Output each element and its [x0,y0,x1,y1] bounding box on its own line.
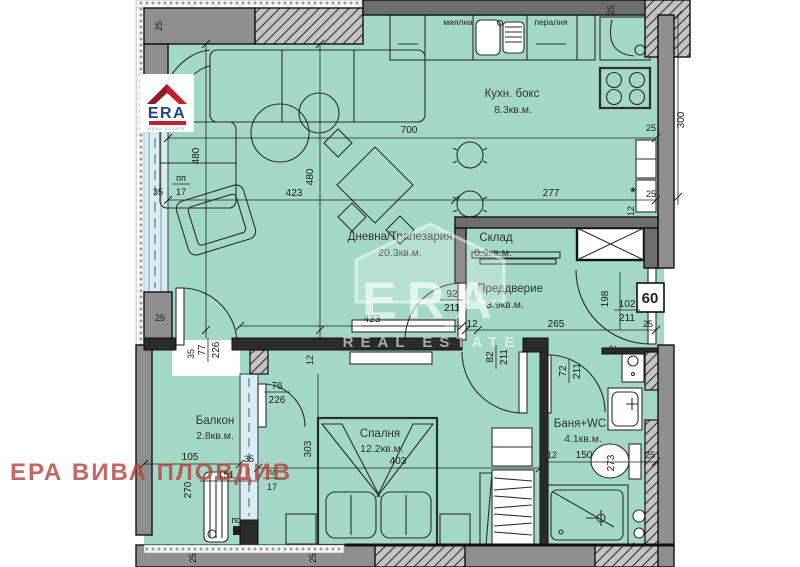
bath-name: Баня+WC [554,418,606,430]
svg-text:226: 226 [269,395,286,406]
era-watermark-subtext: REAL ESTATE [343,334,522,351]
dim-hall-right-12: 12 [608,345,618,355]
svg-text:102: 102 [619,299,636,310]
era-logo: ERA REAL ESTATE [140,74,194,132]
asterisk-symbol: * [630,185,636,202]
kitchen-name: Кухн. бокс [485,88,540,100]
insulation-top [136,0,363,8]
kitchen-cabinets [636,140,656,212]
dim-tv-12: 12 [305,355,315,365]
dim-left-25: 25 [155,313,165,323]
svg-text:211: 211 [572,363,583,379]
dim-wall-12-r: 12 [626,206,636,216]
dim-bottom-25b: 25 [308,553,318,563]
washer-label: пералня [534,17,567,27]
era-logo-subtext: REAL ESTATE [148,126,185,131]
bedroom-width: 403 [390,456,407,467]
right-wall-upper [658,15,674,268]
agency-stamp-text: ЕРА ВИВА ПЛОВДИВ [10,459,292,486]
balcony-name: Балкон [196,415,235,427]
dim-bedroom-303: 303 [303,440,314,457]
dim-top-width: 700 [401,125,418,136]
dim-hall-25: 25 [643,319,653,329]
shaft-hatched-1 [645,352,658,390]
shaft-hatched-2 [645,420,658,545]
kitchen-area: 8.3кв.м. [494,104,532,116]
bath-sink-top [622,350,644,382]
kitchen-sink [476,20,524,55]
svg-text:72: 72 [558,365,569,377]
living-window [142,118,168,292]
dim-left-35: 35 [186,349,196,359]
balcony-area: 2.8кв.м. [196,430,234,442]
panel-label: 60 [642,290,659,307]
dim-tl-pp: пп [176,173,186,183]
era-logo-bar [149,121,186,125]
dim-bottom-25a: 25 [188,553,198,563]
bedroom-name: Спалня [360,428,400,440]
dim-ps: пс [231,515,241,525]
dim-wall-25-tr: 25 [606,5,616,15]
hall-closet [577,228,644,260]
dishwasher-label: миялна [443,17,473,27]
dim-wall-25-r2: 25 [646,189,656,199]
washbasin [608,388,642,430]
svg-text:77: 77 [197,344,208,356]
storage-name: Склад [479,232,513,244]
dim-bath-25: 25 [645,450,655,460]
dim-wall-25-r1: 25 [646,123,656,133]
dim-bath-12: 12 [547,450,557,460]
floor-plan-page: 60 700 423 277 423 480 480 300 25 25 25 … [0,0,800,567]
svg-text:82: 82 [485,351,496,363]
right-wall-lower [658,345,674,545]
bedroom-dresser [350,352,432,364]
svg-text:226: 226 [211,341,222,358]
floor-plan-svg: 60 700 423 277 423 480 480 300 25 25 25 … [0,0,800,567]
dim-tl-35: 35 [153,187,163,197]
dim-living-height-left: 480 [191,147,202,164]
dim-kitchen-width: 277 [543,188,560,199]
dim-living-width: 423 [286,188,303,199]
wall-hatched-top [255,8,363,44]
bedroom-area: 12.2кв.м. [360,443,404,455]
dim-hall-198: 198 [600,290,611,307]
balcony-left-wall [136,345,152,535]
dim-living-height-mid: 480 [305,168,316,185]
balcony-glass-wall [240,374,258,520]
era-logo-text: ERA [148,105,186,122]
svg-text:211: 211 [499,349,510,365]
dim-kitchen-height: 300 [676,111,687,128]
dim-bath-150: 150 [576,450,593,461]
dim-bath-273: 273 [606,454,617,471]
dim-wall-25-tl: 25 [154,21,164,31]
dim-hall-265: 265 [548,319,565,330]
dim-tl-17: 17 [176,187,186,197]
electric-panel: 60 [637,283,664,312]
era-watermark-text: ERA [362,272,502,330]
svg-text:76: 76 [271,381,283,392]
svg-text:211: 211 [619,313,635,324]
bath-area: 4.1кв.м. [564,433,602,445]
